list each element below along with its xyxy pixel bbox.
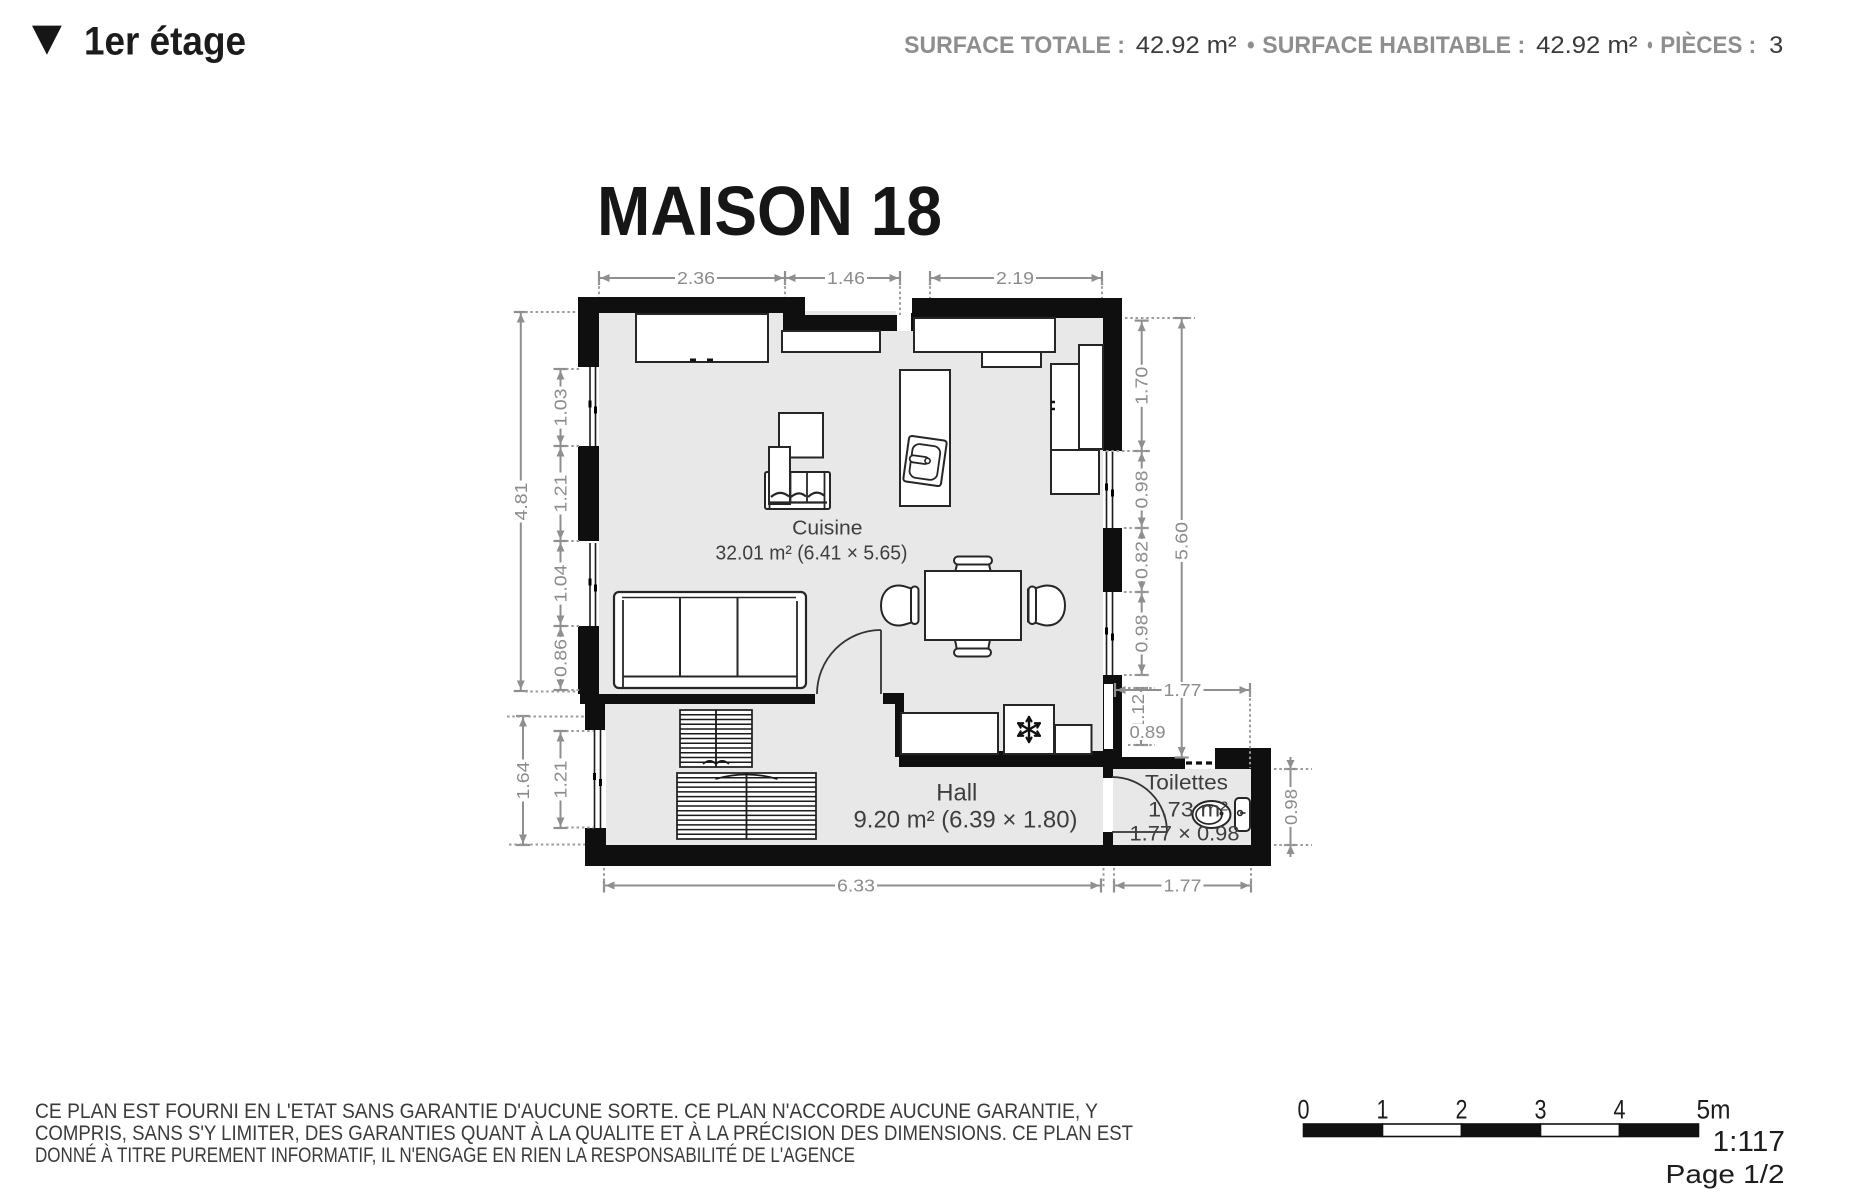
svg-text:1.70: 1.70 bbox=[1132, 367, 1152, 405]
svg-text:MAISON 18: MAISON 18 bbox=[597, 172, 942, 250]
svg-text:PIÈCES :: PIÈCES : bbox=[1660, 31, 1756, 59]
svg-text:0.86: 0.86 bbox=[551, 639, 571, 677]
svg-text:1.77: 1.77 bbox=[1164, 876, 1202, 896]
svg-text:0.89: 0.89 bbox=[1130, 722, 1166, 742]
svg-text:Hall: Hall bbox=[936, 780, 977, 807]
svg-text:9.20 m² (6.39 × 1.80): 9.20 m² (6.39 × 1.80) bbox=[854, 807, 1078, 834]
svg-text:1er étage: 1er étage bbox=[84, 20, 246, 64]
svg-text:Toilettes: Toilettes bbox=[1145, 772, 1228, 795]
svg-text:COMPRIS, SANS S'Y LIMITER, DES: COMPRIS, SANS S'Y LIMITER, DES GARANTIES… bbox=[35, 1122, 1133, 1145]
svg-text:1.64: 1.64 bbox=[513, 761, 533, 799]
svg-text:0.98: 0.98 bbox=[1281, 789, 1301, 825]
svg-text:3: 3 bbox=[1769, 32, 1783, 59]
svg-text:42.92 m²: 42.92 m² bbox=[1536, 32, 1637, 59]
svg-text:1.21: 1.21 bbox=[551, 475, 571, 513]
svg-text:0.98: 0.98 bbox=[1132, 471, 1152, 509]
svg-text:1.04: 1.04 bbox=[551, 564, 571, 602]
svg-text:1.73 m²: 1.73 m² bbox=[1148, 799, 1228, 822]
svg-text:1: 1 bbox=[1377, 1095, 1389, 1125]
svg-text:5m: 5m bbox=[1697, 1095, 1731, 1125]
svg-text:•: • bbox=[1647, 32, 1652, 59]
svg-text:SURFACE HABITABLE :: SURFACE HABITABLE : bbox=[1262, 32, 1525, 59]
svg-text:32.01 m² (6.41 × 5.65): 32.01 m² (6.41 × 5.65) bbox=[716, 543, 908, 565]
svg-text:Page 1/2: Page 1/2 bbox=[1666, 1159, 1785, 1189]
svg-text:2.19: 2.19 bbox=[996, 268, 1034, 288]
svg-text:2: 2 bbox=[1456, 1095, 1468, 1125]
svg-text:1.77: 1.77 bbox=[1164, 680, 1202, 700]
svg-text:42.92 m²: 42.92 m² bbox=[1136, 32, 1237, 59]
svg-text:DONNÉ À TITRE PUREMENT INFORMA: DONNÉ À TITRE PUREMENT INFORMATIF, IL N'… bbox=[35, 1144, 855, 1167]
svg-text:CE PLAN EST FOURNI EN L'ETAT S: CE PLAN EST FOURNI EN L'ETAT SANS GARANT… bbox=[35, 1100, 1098, 1123]
svg-text:1.21: 1.21 bbox=[551, 761, 571, 799]
svg-text:Cuisine: Cuisine bbox=[792, 517, 862, 540]
svg-text:6.33: 6.33 bbox=[837, 876, 875, 896]
svg-text:1:117: 1:117 bbox=[1713, 1126, 1785, 1158]
svg-text:2.36: 2.36 bbox=[677, 268, 715, 288]
svg-text:4.81: 4.81 bbox=[511, 483, 531, 521]
svg-text:1.46: 1.46 bbox=[827, 268, 865, 288]
svg-text:5.60: 5.60 bbox=[1172, 522, 1192, 560]
svg-text:1.03: 1.03 bbox=[551, 389, 571, 427]
svg-text:0.98: 0.98 bbox=[1132, 615, 1152, 653]
svg-text:4: 4 bbox=[1614, 1095, 1626, 1125]
svg-text:•: • bbox=[1247, 32, 1255, 59]
svg-text:0: 0 bbox=[1298, 1095, 1310, 1125]
svg-text:3: 3 bbox=[1535, 1095, 1547, 1125]
svg-text:SURFACE TOTALE :: SURFACE TOTALE : bbox=[904, 32, 1125, 59]
svg-text:0.82: 0.82 bbox=[1132, 541, 1152, 579]
svg-text:1.77 × 0.98: 1.77 × 0.98 bbox=[1130, 823, 1240, 846]
